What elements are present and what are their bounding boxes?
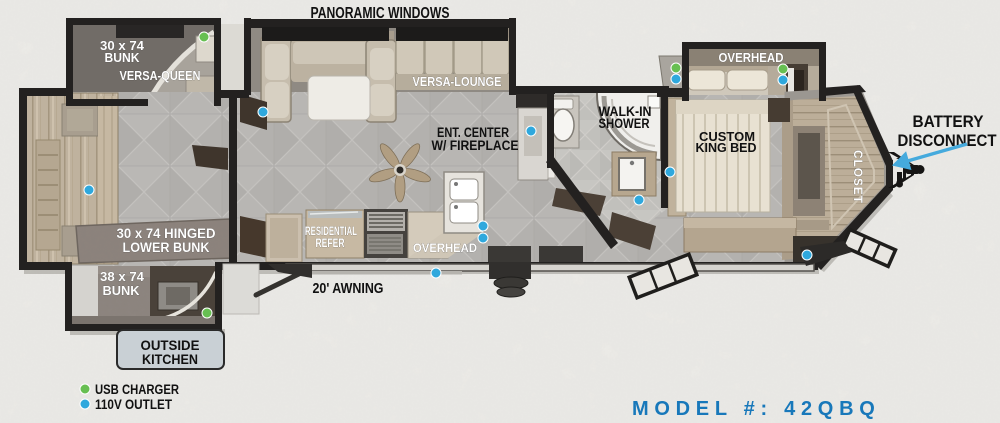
svg-text:BUNK: BUNK (103, 283, 141, 298)
svg-text:KING BED: KING BED (696, 141, 757, 155)
svg-text:BUNK: BUNK (105, 51, 140, 65)
svg-text:CLOSET: CLOSET (851, 150, 863, 204)
svg-text:38 x 74: 38 x 74 (100, 269, 145, 284)
svg-text:MODEL #: 42QBQ: MODEL #: 42QBQ (632, 398, 878, 420)
svg-text:110V OUTLET: 110V OUTLET (95, 397, 173, 412)
svg-text:OUTSIDE: OUTSIDE (141, 338, 200, 353)
svg-text:BATTERY: BATTERY (913, 113, 984, 131)
svg-text:OVERHEAD: OVERHEAD (413, 241, 477, 255)
svg-text:USB CHARGER: USB CHARGER (95, 382, 179, 397)
svg-text:LOWER BUNK: LOWER BUNK (123, 240, 210, 255)
svg-text:KITCHEN: KITCHEN (142, 352, 198, 367)
svg-text:RESIDENTIAL: RESIDENTIAL (305, 226, 357, 238)
svg-text:VERSA-QUEEN: VERSA-QUEEN (120, 69, 201, 83)
svg-text:OVERHEAD: OVERHEAD (719, 51, 784, 65)
svg-text:W/ FIREPLACE: W/ FIREPLACE (432, 138, 519, 153)
svg-text:REFER: REFER (316, 238, 346, 250)
svg-text:VERSA-LOUNGE: VERSA-LOUNGE (413, 75, 502, 89)
svg-text:DISCONNECT: DISCONNECT (898, 132, 997, 150)
svg-text:PANORAMIC WINDOWS: PANORAMIC WINDOWS (311, 5, 450, 22)
svg-text:20' AWNING: 20' AWNING (313, 281, 384, 297)
svg-text:30 x 74 HINGED: 30 x 74 HINGED (117, 226, 216, 241)
svg-text:SHOWER: SHOWER (599, 116, 650, 131)
